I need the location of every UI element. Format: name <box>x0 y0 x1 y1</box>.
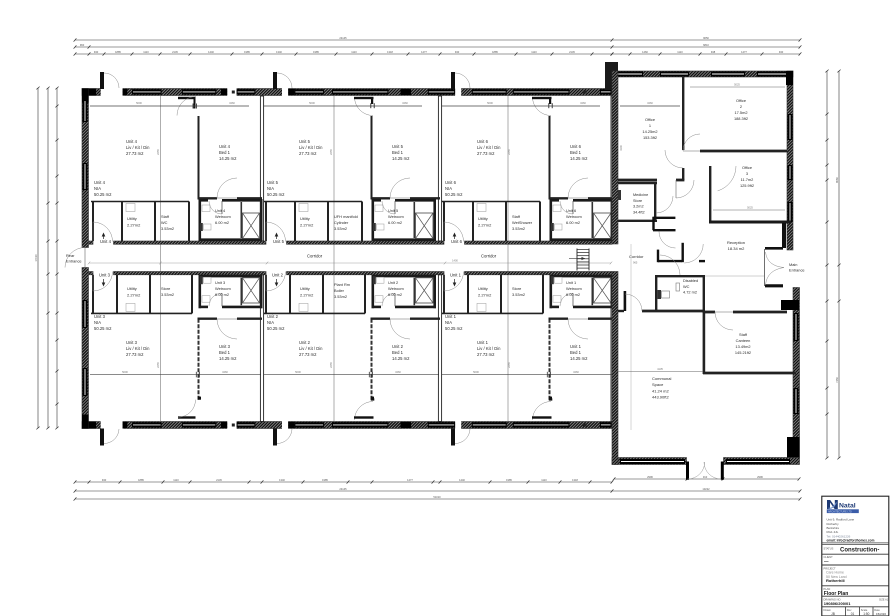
svg-text:Store: Store <box>512 286 521 291</box>
svg-text:Wetroom: Wetroom <box>566 214 582 219</box>
svg-text:NIA: NIA <box>94 186 101 191</box>
svg-text:2145: 2145 <box>216 478 222 482</box>
svg-text:Office: Office <box>742 165 752 170</box>
svg-text:5000: 5000 <box>473 370 479 374</box>
svg-text:Date: Date <box>874 608 880 612</box>
svg-text:18.34 m2: 18.34 m2 <box>728 246 745 251</box>
svg-text:STATUS: STATUS <box>824 547 834 551</box>
svg-text:Unit 6: Unit 6 <box>445 180 457 185</box>
svg-text:NIA: NIA <box>445 320 452 325</box>
svg-text:Rev: Rev <box>847 608 852 612</box>
svg-text:27.73 m2: 27.73 m2 <box>126 151 144 156</box>
svg-text:Bed 1: Bed 1 <box>570 350 582 355</box>
svg-text:Staff: Staff <box>161 214 170 219</box>
svg-text:Office: Office <box>645 117 655 122</box>
svg-text:1318: 1318 <box>387 50 393 54</box>
svg-text:940: 940 <box>94 50 99 54</box>
svg-text:Entrance: Entrance <box>789 268 805 273</box>
svg-text:Unit 2: Unit 2 <box>388 280 398 285</box>
svg-text:1110: 1110 <box>143 50 149 54</box>
svg-text:WetShower: WetShower <box>512 220 533 225</box>
svg-text:34.4ft2: 34.4ft2 <box>633 210 645 214</box>
svg-text:Unit 1: Unit 1 <box>445 314 457 319</box>
svg-text:Canteen: Canteen <box>736 338 751 343</box>
svg-text:2255: 2255 <box>156 362 160 368</box>
svg-text:940: 940 <box>455 50 460 54</box>
svg-text:JB: JB <box>831 612 835 616</box>
svg-text:3.2m2: 3.2m2 <box>633 205 644 209</box>
svg-text:Wetroom: Wetroom <box>566 286 582 291</box>
svg-text:Bed 1: Bed 1 <box>392 350 404 355</box>
svg-text:1985: 1985 <box>506 478 512 482</box>
svg-text:50.25 m2: 50.25 m2 <box>94 326 112 331</box>
svg-text:2255: 2255 <box>507 362 511 368</box>
svg-text:Unit 1: Unit 1 <box>477 340 489 345</box>
svg-text:Unit 4: Unit 4 <box>215 208 226 213</box>
svg-text:Wetroom: Wetroom <box>388 214 404 219</box>
svg-text:2.27m2: 2.27m2 <box>300 223 314 228</box>
svg-text:Unit 6: Unit 6 <box>566 208 576 213</box>
svg-text:1460: 1460 <box>642 50 648 54</box>
svg-text:SIZE A1: SIZE A1 <box>879 599 889 602</box>
svg-text:1110: 1110 <box>541 478 547 482</box>
svg-text:3460: 3460 <box>222 370 228 374</box>
svg-text:Rear: Rear <box>66 253 75 258</box>
svg-text:Unit 4: Unit 4 <box>94 180 106 185</box>
svg-text:Liv / Kit / Din: Liv / Kit / Din <box>477 346 501 351</box>
svg-text:Bed 1: Bed 1 <box>219 150 231 155</box>
svg-text:188.3ft2: 188.3ft2 <box>734 116 748 121</box>
svg-text:NIA: NIA <box>445 186 452 191</box>
svg-text:27.73 m2: 27.73 m2 <box>299 352 317 357</box>
svg-text:Bed 1: Bed 1 <box>570 150 582 155</box>
svg-text:Plant Rm: Plant Rm <box>334 282 350 287</box>
svg-text:Liv / Kit / Din: Liv / Kit / Din <box>299 145 323 150</box>
svg-text:1477: 1477 <box>741 50 747 54</box>
svg-text:24145: 24145 <box>339 487 347 491</box>
svg-text:Unit 6: Unit 6 <box>570 144 582 149</box>
svg-text:6.00 m2: 6.00 m2 <box>566 292 580 297</box>
svg-text:1: 1 <box>649 123 651 128</box>
svg-text:NIA: NIA <box>267 186 274 191</box>
svg-text:Unit 5: Unit 5 <box>392 144 404 149</box>
svg-text:Rotherhill: Rotherhill <box>826 578 845 583</box>
svg-text:1985: 1985 <box>322 478 328 482</box>
svg-text:6810: 6810 <box>703 43 709 47</box>
svg-text:Office: Office <box>736 98 746 103</box>
svg-text:2.27m2: 2.27m2 <box>478 223 492 228</box>
svg-text:5000: 5000 <box>122 370 128 374</box>
svg-text:Drawn: Drawn <box>824 608 832 612</box>
svg-text:Unit 1: Unit 1 <box>566 280 576 285</box>
svg-text:17.5m2: 17.5m2 <box>735 110 748 115</box>
svg-text:1110: 1110 <box>351 50 357 54</box>
svg-text:2255: 2255 <box>156 149 160 155</box>
svg-text:Liv / Kit / Din: Liv / Kit / Din <box>126 145 150 150</box>
svg-text:Natal: Natal <box>839 503 856 510</box>
svg-text:2.27m2: 2.27m2 <box>127 223 141 228</box>
svg-text:1440: 1440 <box>208 50 214 54</box>
svg-text:Liv / Kit / Din: Liv / Kit / Din <box>299 346 323 351</box>
svg-text:940: 940 <box>779 50 784 54</box>
svg-text:1110: 1110 <box>173 478 179 482</box>
svg-text:1:50: 1:50 <box>863 612 869 616</box>
svg-text:3460: 3460 <box>573 370 579 374</box>
svg-text:5000: 5000 <box>136 101 142 105</box>
svg-text:17010: 17010 <box>34 254 38 262</box>
svg-text:1885: 1885 <box>115 50 121 54</box>
svg-text:UFH manifold: UFH manifold <box>334 214 358 219</box>
svg-text:153.3ft2: 153.3ft2 <box>643 135 657 140</box>
svg-text:1985: 1985 <box>244 50 250 54</box>
svg-text:3460: 3460 <box>580 101 586 105</box>
svg-text:1885: 1885 <box>138 478 144 482</box>
svg-text:Unit 6: Unit 6 <box>477 139 489 144</box>
svg-text:NIA: NIA <box>94 320 101 325</box>
svg-text:2145: 2145 <box>569 50 575 54</box>
svg-text:1440: 1440 <box>459 478 465 482</box>
svg-text:2255: 2255 <box>507 149 511 155</box>
svg-text:WC: WC <box>683 284 690 289</box>
svg-text:2145: 2145 <box>172 50 178 54</box>
svg-text:Unit 2: Unit 2 <box>272 273 284 278</box>
svg-text:1340: 1340 <box>279 478 285 482</box>
svg-text:3460: 3460 <box>395 370 401 374</box>
svg-text:14.25 m2: 14.25 m2 <box>219 156 237 161</box>
svg-text:6.00 m2: 6.00 m2 <box>388 220 402 225</box>
svg-text:14.25 m2: 14.25 m2 <box>570 356 588 361</box>
svg-text:Unit 3: Unit 3 <box>126 340 138 345</box>
svg-text:2: 2 <box>740 104 742 109</box>
svg-text:3.53m2: 3.53m2 <box>161 292 174 297</box>
svg-text:5025: 5025 <box>747 206 753 210</box>
svg-text:27.73 m2: 27.73 m2 <box>477 352 495 357</box>
svg-text:Utility: Utility <box>127 216 137 221</box>
svg-text:13.49m2: 13.49m2 <box>735 344 750 349</box>
svg-text:1110: 1110 <box>677 50 683 54</box>
svg-text:Unit 3: Unit 3 <box>94 314 106 319</box>
svg-text:3.53m2: 3.53m2 <box>512 292 525 297</box>
svg-text:1885: 1885 <box>492 50 498 54</box>
svg-text:50.25 m2: 50.25 m2 <box>445 192 463 197</box>
svg-text:Wetroom: Wetroom <box>388 286 404 291</box>
svg-text:50.25 m2: 50.25 m2 <box>267 326 285 331</box>
svg-text:Liv / Kit / Din: Liv / Kit / Din <box>126 346 150 351</box>
svg-text:Corridor: Corridor <box>481 254 497 259</box>
svg-text:Unit 2: Unit 2 <box>267 314 279 319</box>
svg-text:27.73 m2: 27.73 m2 <box>126 352 144 357</box>
svg-text:1985: 1985 <box>313 50 319 54</box>
svg-text:24145: 24145 <box>339 36 347 40</box>
svg-text:Store: Store <box>161 286 170 291</box>
svg-text:2.27m2: 2.27m2 <box>478 293 492 298</box>
svg-text:Construction-: Construction- <box>840 548 879 554</box>
svg-text:2255: 2255 <box>329 362 333 368</box>
svg-text:NIA: NIA <box>267 320 274 325</box>
svg-text:11.7m2: 11.7m2 <box>741 177 754 182</box>
svg-text:Unit 3: Unit 3 <box>219 344 231 349</box>
svg-text:Corridor: Corridor <box>307 254 323 259</box>
svg-text:Medicine: Medicine <box>633 193 648 197</box>
svg-text:Utility: Utility <box>300 216 310 221</box>
svg-text:Reception: Reception <box>727 240 745 245</box>
svg-text:27.73 m2: 27.73 m2 <box>299 151 317 156</box>
svg-text:Unit 5: Unit 5 <box>299 139 311 144</box>
svg-text:3460: 3460 <box>647 101 653 105</box>
svg-text:51010: 51010 <box>433 495 441 499</box>
svg-text:Store: Store <box>633 199 642 203</box>
svg-text:Unit 4: Unit 4 <box>100 239 112 244</box>
svg-text:13222: 13222 <box>702 487 710 491</box>
svg-text:1340: 1340 <box>276 50 282 54</box>
svg-text:7450: 7450 <box>835 377 839 383</box>
svg-text:14.25m2: 14.25m2 <box>642 129 657 134</box>
svg-text:Staff: Staff <box>512 214 521 219</box>
svg-text:Unit 6: Unit 6 <box>451 239 463 244</box>
svg-text:14.25 m2: 14.25 m2 <box>219 356 237 361</box>
svg-text:3.53m2: 3.53m2 <box>334 294 347 299</box>
svg-text:Bed 1: Bed 1 <box>219 350 231 355</box>
svg-text:3.53m2: 3.53m2 <box>512 226 525 231</box>
svg-text:310: 310 <box>703 475 708 479</box>
svg-text:Disabled: Disabled <box>683 278 698 283</box>
svg-text:14.25 m2: 14.25 m2 <box>392 156 410 161</box>
svg-text:Unit 3: Unit 3 <box>215 280 225 285</box>
svg-text:5025: 5025 <box>734 83 740 87</box>
svg-text:2.27m2: 2.27m2 <box>300 293 314 298</box>
svg-text:—: — <box>824 559 829 564</box>
svg-text:6.00 m2: 6.00 m2 <box>215 220 229 225</box>
svg-text:8060: 8060 <box>835 177 839 183</box>
svg-text:Unit 1: Unit 1 <box>450 273 462 278</box>
svg-text:125.9ft2: 125.9ft2 <box>740 183 754 188</box>
svg-text:3: 3 <box>746 171 748 176</box>
svg-text:15/2/20: 15/2/20 <box>876 612 886 616</box>
svg-text:50.25 m2: 50.25 m2 <box>94 192 112 197</box>
svg-text:Cylinder: Cylinder <box>334 220 349 225</box>
svg-text:Unit 1: Unit 1 <box>570 344 582 349</box>
svg-text:Unit 5: Unit 5 <box>273 239 285 244</box>
svg-text:5000: 5000 <box>487 101 493 105</box>
svg-text:Wetroom: Wetroom <box>215 286 231 291</box>
svg-text:Boiler: Boiler <box>334 288 345 293</box>
svg-text:3460: 3460 <box>229 101 235 105</box>
svg-text:3460: 3460 <box>402 101 408 105</box>
svg-text:Unit 5: Unit 5 <box>388 208 398 213</box>
svg-text:Utility: Utility <box>478 216 488 221</box>
svg-text:9650: 9650 <box>703 36 709 40</box>
svg-text:Utility: Utility <box>300 286 310 291</box>
svg-text:6.00 m2: 6.00 m2 <box>566 220 580 225</box>
svg-text:3.53m2: 3.53m2 <box>161 226 174 231</box>
svg-text:940: 940 <box>102 478 107 482</box>
svg-text:Main: Main <box>789 262 797 267</box>
svg-text:2996: 2996 <box>647 475 653 479</box>
svg-text:WC: WC <box>161 220 168 225</box>
svg-text:Staff: Staff <box>739 332 748 337</box>
svg-text:Wetroom: Wetroom <box>215 214 231 219</box>
svg-text:50.25 m2: 50.25 m2 <box>267 192 285 197</box>
svg-text:190806/200/01: 190806/200/01 <box>824 601 851 606</box>
svg-text:Liv / Kit / Din: Liv / Kit / Din <box>477 145 501 150</box>
svg-text:1477: 1477 <box>421 50 427 54</box>
svg-text:2.27m2: 2.27m2 <box>127 293 141 298</box>
svg-text:4100: 4100 <box>619 145 623 151</box>
svg-text:5000: 5000 <box>309 101 315 105</box>
svg-text:965: 965 <box>633 261 638 265</box>
svg-text:ARCHITECTURE LTD: ARCHITECTURE LTD <box>828 510 852 513</box>
svg-text:2255: 2255 <box>329 149 333 155</box>
svg-text:01: 01 <box>851 612 855 616</box>
svg-text:1318: 1318 <box>572 478 578 482</box>
svg-text:Unit 5: Unit 5 <box>267 180 279 185</box>
svg-text:Unit 2: Unit 2 <box>392 344 404 349</box>
svg-text:3.53m2: 3.53m2 <box>334 226 347 231</box>
svg-text:Corridor: Corridor <box>629 254 644 259</box>
svg-text:50.25 m2: 50.25 m2 <box>445 326 463 331</box>
svg-text:Entrance: Entrance <box>66 259 82 264</box>
svg-text:14.25 m2: 14.25 m2 <box>570 156 588 161</box>
svg-text:Unit 4: Unit 4 <box>219 144 231 149</box>
svg-text:Unit 3: Unit 3 <box>99 273 111 278</box>
svg-text:1400: 1400 <box>452 259 458 263</box>
svg-text:145.21ft2: 145.21ft2 <box>735 350 751 355</box>
svg-text:41.24 m2: 41.24 m2 <box>652 388 669 393</box>
svg-text:1477: 1477 <box>407 478 413 482</box>
svg-text:2996: 2996 <box>757 475 763 479</box>
svg-text:Utility: Utility <box>127 286 137 291</box>
svg-text:1110: 1110 <box>531 50 537 54</box>
svg-text:Space: Space <box>652 382 664 387</box>
svg-text:27.73 m2: 27.73 m2 <box>477 151 495 156</box>
svg-text:5000: 5000 <box>295 370 301 374</box>
svg-text:Utility: Utility <box>478 286 488 291</box>
svg-text:4135: 4135 <box>657 367 663 371</box>
svg-text:Unit 4: Unit 4 <box>126 139 138 144</box>
svg-text:Communal: Communal <box>652 376 671 381</box>
svg-text:6.00 m2: 6.00 m2 <box>215 292 229 297</box>
svg-text:email: info@radfordhomes.com: email: info@radfordhomes.com <box>827 539 875 543</box>
svg-text:948: 948 <box>711 50 716 54</box>
svg-text:Scale: Scale <box>861 608 868 612</box>
svg-text:443.90ft2: 443.90ft2 <box>652 395 669 400</box>
svg-text:Unit 2: Unit 2 <box>299 340 311 345</box>
svg-text:Bed 1: Bed 1 <box>392 150 404 155</box>
svg-text:960: 960 <box>80 43 85 47</box>
svg-text:4.72 m2: 4.72 m2 <box>683 290 697 295</box>
svg-text:6.00 m2: 6.00 m2 <box>388 292 402 297</box>
svg-text:14.25 m2: 14.25 m2 <box>392 356 410 361</box>
